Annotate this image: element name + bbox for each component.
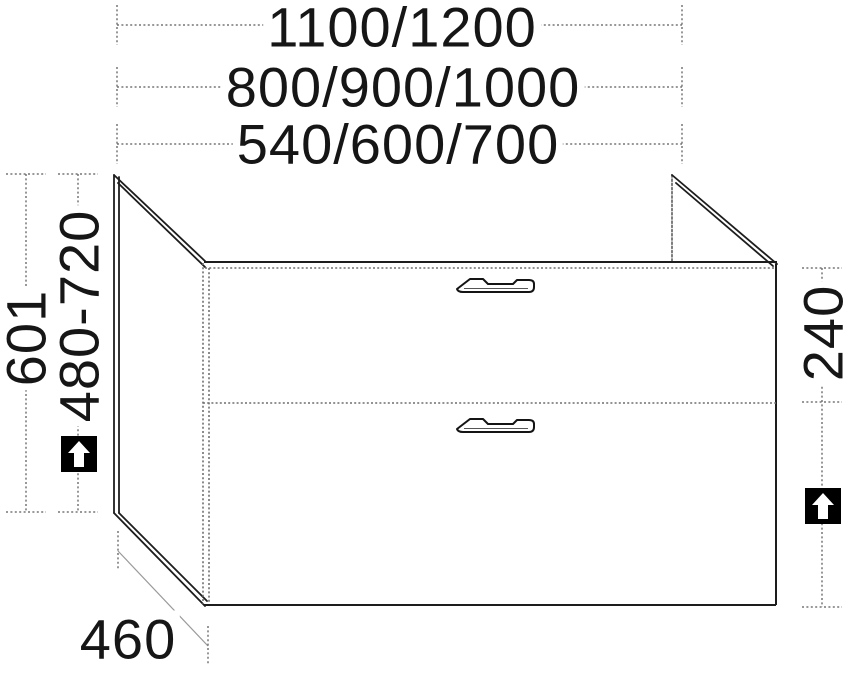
dimension-label-adjustable-height: 480-720 (50, 206, 107, 427)
top-drawer-handle (457, 279, 534, 292)
right-side-panel (672, 175, 777, 266)
dimension-label-width-row2: 800/900/1000 (222, 58, 585, 115)
height-adjustable-up-arrow-icon-left (61, 436, 97, 472)
cabinet-front (203, 262, 777, 605)
bottom-drawer-handle (457, 419, 534, 432)
technical-drawing-page: 1100/1200 800/900/1000 540/600/700 601 4… (0, 0, 862, 676)
dimension-label-depth: 460 (76, 610, 180, 667)
dimension-label-top-drawer-height: 240 (794, 281, 851, 385)
left-side-panel (114, 175, 207, 606)
dimension-label-width-row3: 540/600/700 (233, 115, 563, 172)
dimension-label-width-row1: 1100/1200 (263, 0, 541, 56)
vanity-cabinet (114, 175, 777, 606)
dimension-label-carcase-height: 601 (0, 286, 55, 390)
height-adjustable-up-arrow-icon-right (805, 488, 841, 524)
